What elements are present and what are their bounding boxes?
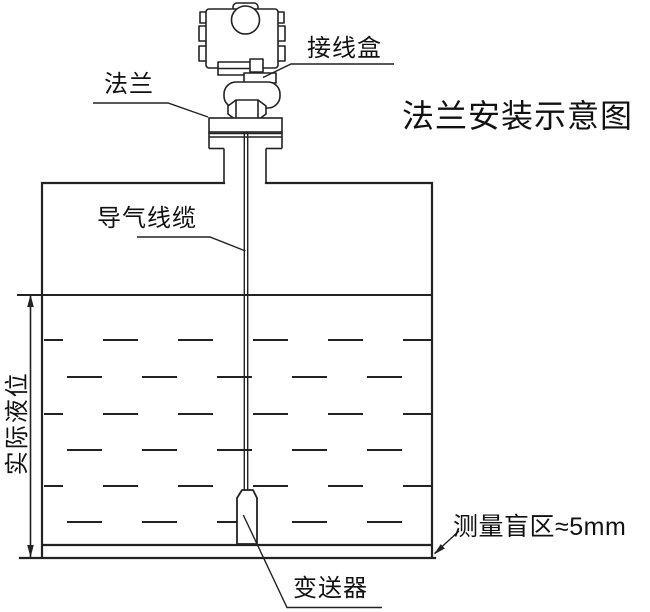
cable-leader [137,237,246,251]
tank-outline [18,183,435,558]
arrowhead-up [27,295,34,308]
probe-body [237,490,257,544]
flange-installation-diagram: 法兰安装示意图 接线盒 法兰 导气线缆 实际液位 测量盲区≈5mm 变送器 [0,0,650,612]
conduit-block [250,59,263,72]
diagram-title: 法兰安装示意图 [402,99,633,134]
hex-nut [228,100,266,120]
flange-leader [93,103,208,117]
housing-dome [232,6,260,34]
guide-cable [244,132,247,490]
flange-assembly [209,118,282,184]
transmitter-head [199,3,285,120]
flange-plate [209,118,282,132]
junction-box-leader [263,64,394,78]
liquid-dashes [28,340,432,522]
junction-box-label: 接线盒 [307,36,382,62]
flange-label: 法兰 [104,72,154,98]
blind-zone-label: 测量盲区≈5mm [453,514,626,542]
transmitter-probe-label: 变送器 [293,576,368,602]
air-guide-cable-label: 导气线缆 [97,206,197,232]
actual-liquid-level-label: 实际液位 [5,367,31,479]
arrowhead-down [27,545,34,558]
leader-lines [93,64,459,608]
